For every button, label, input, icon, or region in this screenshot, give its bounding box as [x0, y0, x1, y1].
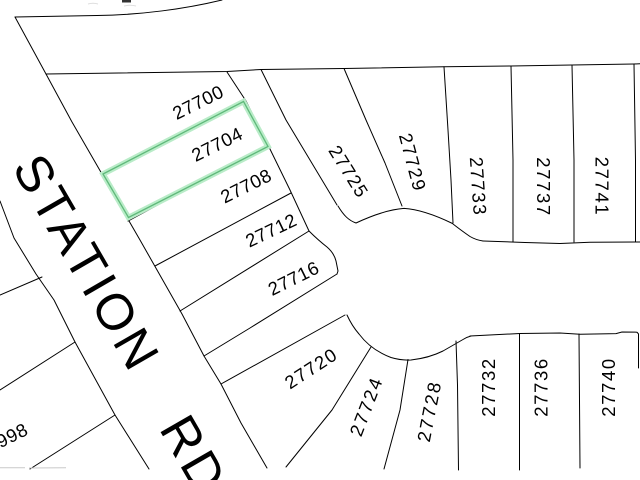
svg-text:27737: 27737 [533, 157, 554, 216]
svg-text:27733: 27733 [466, 156, 491, 217]
svg-text:27740: 27740 [598, 357, 619, 416]
svg-text:27732: 27732 [478, 357, 499, 416]
svg-text:27741: 27741 [591, 157, 612, 216]
svg-text:27736: 27736 [530, 357, 551, 416]
